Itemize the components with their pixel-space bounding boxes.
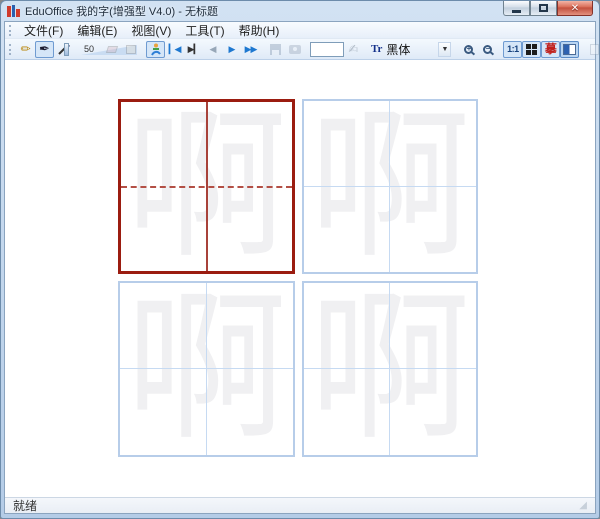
pen-icon: ✒ [39,41,50,57]
close-button[interactable]: ✕ [557,1,593,16]
template-character: 啊 [304,101,476,272]
play-icon: ▶ [229,44,235,55]
fit-window-icon [526,44,537,55]
toolbar-grip[interactable] [9,44,11,55]
status-bar: 就绪 ◢ [5,497,595,513]
title-bar[interactable]: EduOffice 我的字(增强型 V4.0) - 无标题 ✕ [1,1,599,21]
pencil-icon: ✏ [20,42,30,56]
truetype-icon: Tr [371,43,382,55]
character-input[interactable] [310,42,344,57]
zoom-in-button[interactable]: + [459,41,478,58]
zoom-in-icon: + [464,45,473,54]
actual-size-label: 1:1 [507,44,519,54]
toolbar: ✏ ✒ 50 ▎◀ ▶▎ [5,39,595,60]
eraser-button[interactable] [102,41,121,58]
stroke-demo-icon [149,42,163,56]
trace-mode-button[interactable]: 摹 [541,41,560,58]
menu-file[interactable]: 文件(F) [17,21,70,40]
horizontal-guide-line [120,368,293,369]
previous-stroke-icon: ◀ [210,44,216,55]
actual-size-button[interactable]: 1:1 [503,41,522,58]
practice-grid[interactable]: 啊 [302,281,478,457]
menu-bar: 文件(F) 编辑(E) 视图(V) 工具(T) 帮助(H) [5,22,595,39]
go-last-icon: ▶▎ [188,44,200,55]
practice-grid-active[interactable]: 啊 [118,99,295,274]
maximize-icon [539,4,548,12]
menu-help[interactable]: 帮助(H) [232,21,287,40]
font-selector[interactable]: Tr 黑体 ▼ [371,41,451,58]
previous-stroke-button[interactable]: ◀ [203,41,222,58]
vertical-guide-line [206,283,207,455]
practice-grid[interactable]: 啊 [302,99,478,274]
play-button[interactable]: ▶ [222,41,241,58]
menu-tools[interactable]: 工具(T) [178,21,231,40]
zoom-out-icon: − [483,45,492,54]
save-button[interactable] [266,41,285,58]
page-icon [590,44,599,55]
app-window: EduOffice 我的字(增强型 V4.0) - 无标题 ✕ 文件(F) 编辑… [0,0,600,519]
status-text: 就绪 [13,497,579,514]
maximize-button[interactable] [530,1,557,16]
clear-all-button[interactable] [121,41,140,58]
close-icon: ✕ [571,3,579,14]
practice-grid[interactable]: 啊 [118,281,295,457]
horizontal-guide-line [304,186,476,187]
clear-icon [126,45,136,54]
minimize-icon [512,10,521,13]
font-selector-value: 黑体 [382,41,438,58]
template-character: 啊 [304,283,476,455]
horizontal-guide-line [304,368,476,369]
go-first-icon: ▎◀ [169,44,181,55]
eduoffice-logo-icon [7,5,20,17]
vertical-guide-line [389,101,390,272]
template-character: 啊 [120,283,293,455]
split-view-icon [563,44,576,55]
new-page-button[interactable] [585,41,600,58]
go-first-stroke-button[interactable]: ▎◀ [165,41,184,58]
pencil-tool-button[interactable]: ✏ [16,41,35,58]
write-character-button[interactable]: ✍ [344,41,363,58]
fast-forward-button[interactable]: ▶▶ [241,41,260,58]
zoom-out-button[interactable]: − [478,41,497,58]
camera-icon [289,45,301,54]
menubar-grip[interactable] [9,25,12,36]
slider-handle[interactable] [64,43,69,56]
vertical-guide-line [389,283,390,455]
eraser-icon [105,46,117,53]
chevron-down-icon[interactable]: ▼ [438,42,451,57]
fast-forward-icon: ▶▶ [245,44,257,55]
save-icon [270,44,281,55]
go-last-stroke-button[interactable]: ▶▎ [184,41,203,58]
horizontal-guide-line [121,186,292,188]
writing-hand-icon: ✍ [348,42,358,56]
split-view-button[interactable] [560,41,579,58]
trace-mode-label: 摹 [545,43,557,55]
resize-grip-icon[interactable]: ◢ [579,501,587,511]
menu-edit[interactable]: 编辑(E) [70,21,124,40]
writing-canvas[interactable]: 啊 啊 啊 啊 [5,60,595,497]
window-title: EduOffice 我的字(增强型 V4.0) - 无标题 [25,3,498,19]
stroke-demo-button[interactable] [146,41,165,58]
fit-window-button[interactable] [522,41,541,58]
menu-view[interactable]: 视图(V) [124,21,178,40]
minimize-button[interactable] [503,1,530,16]
snapshot-button[interactable] [285,41,304,58]
client-area: 文件(F) 编辑(E) 视图(V) 工具(T) 帮助(H) ✏ ✒ 50 [4,21,596,514]
pen-tool-button[interactable]: ✒ [35,41,54,58]
